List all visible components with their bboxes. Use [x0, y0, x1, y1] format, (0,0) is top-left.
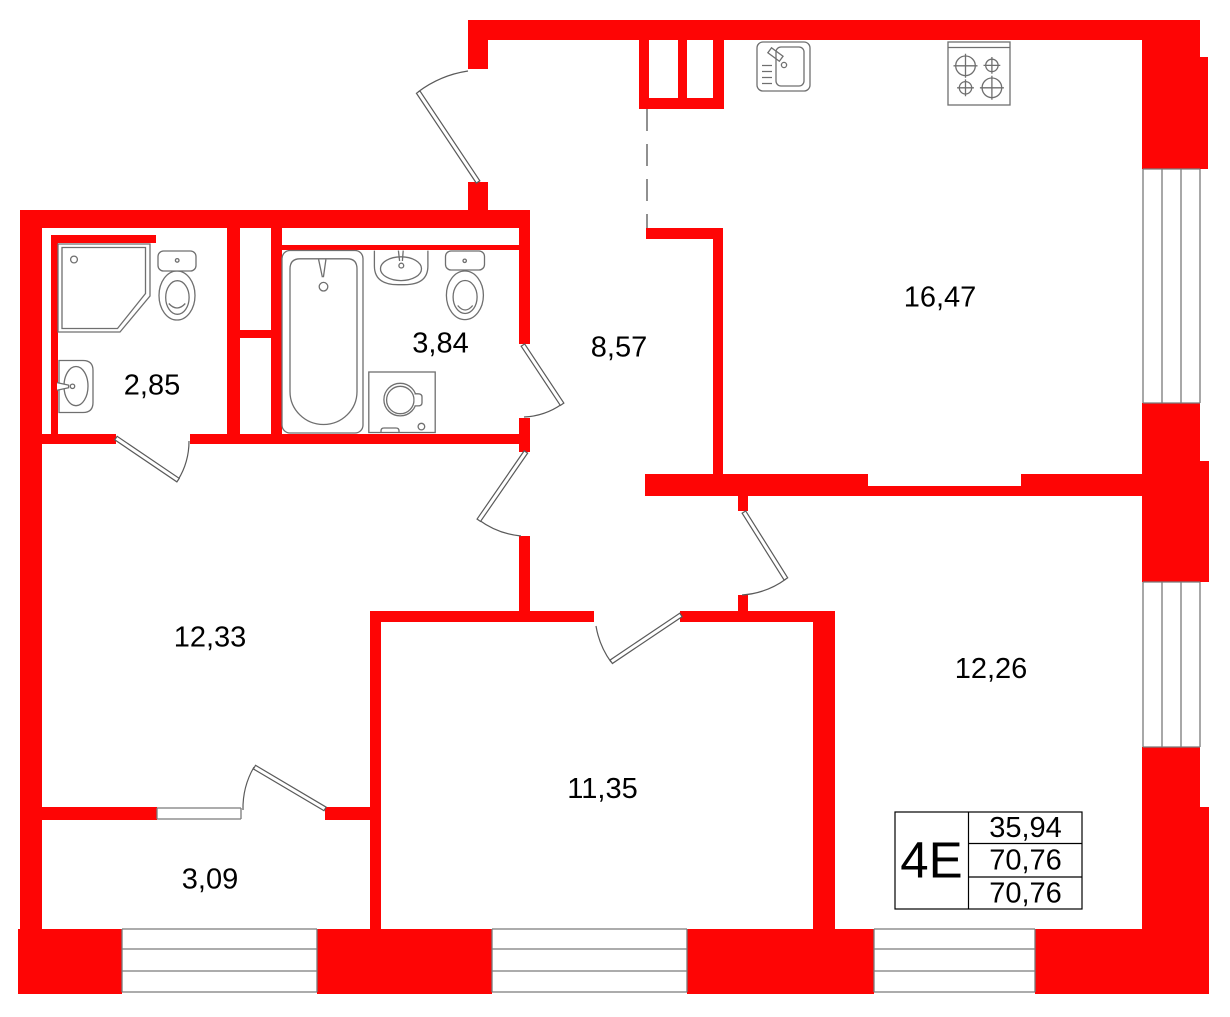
svg-text:3,09: 3,09 — [182, 863, 238, 895]
svg-text:4Е: 4Е — [900, 832, 962, 889]
svg-text:2,85: 2,85 — [124, 369, 180, 401]
svg-text:12,33: 12,33 — [174, 621, 247, 653]
svg-text:8,57: 8,57 — [591, 332, 647, 364]
svg-text:70,76: 70,76 — [989, 845, 1062, 877]
svg-text:35,94: 35,94 — [989, 812, 1062, 844]
svg-text:70,76: 70,76 — [989, 878, 1062, 910]
svg-text:16,47: 16,47 — [904, 281, 977, 313]
svg-text:3,84: 3,84 — [412, 328, 468, 360]
svg-text:12,26: 12,26 — [955, 653, 1028, 685]
svg-text:11,35: 11,35 — [567, 773, 637, 805]
